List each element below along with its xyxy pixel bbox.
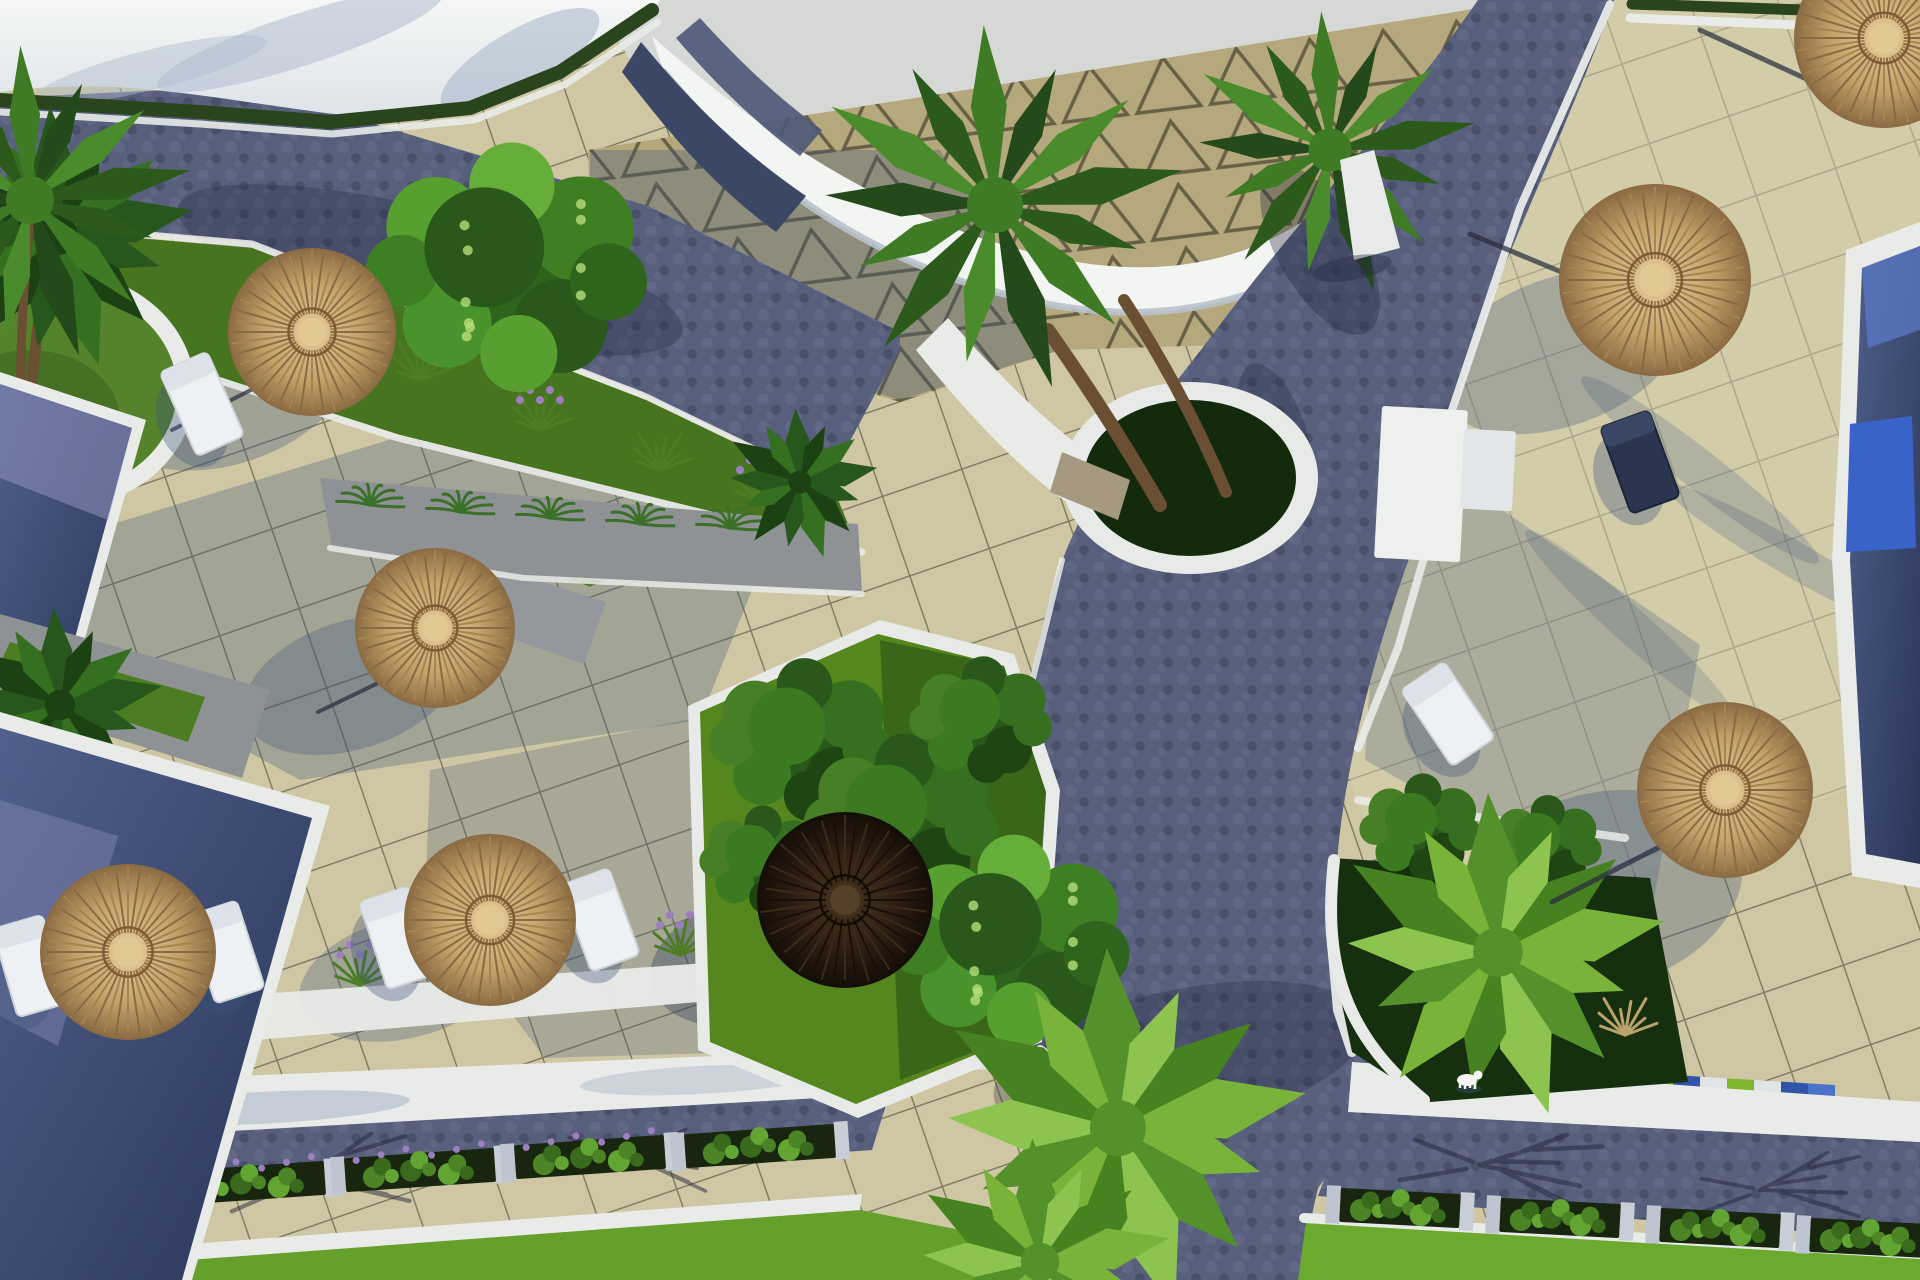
- straw-umbrella-5: [1559, 184, 1751, 376]
- white-wall-block: [1374, 406, 1468, 562]
- aerial-render-viewport: aerial-render-resort-courtyard: [0, 0, 1920, 1280]
- resort-courtyard-render: [0, 0, 1920, 1280]
- white-wall-block-ext: [1460, 429, 1516, 512]
- straw-umbrella-3: [40, 864, 216, 1040]
- scene-layer: [0, 0, 1920, 1280]
- straw-umbrella-1: [228, 248, 396, 416]
- straw-umbrella-4: [404, 834, 576, 1006]
- straw-umbrella-2: [355, 548, 515, 708]
- dark-umbrella: [757, 812, 933, 988]
- straw-umbrella-6: [1637, 702, 1813, 878]
- east-pool-royal: [1846, 416, 1916, 552]
